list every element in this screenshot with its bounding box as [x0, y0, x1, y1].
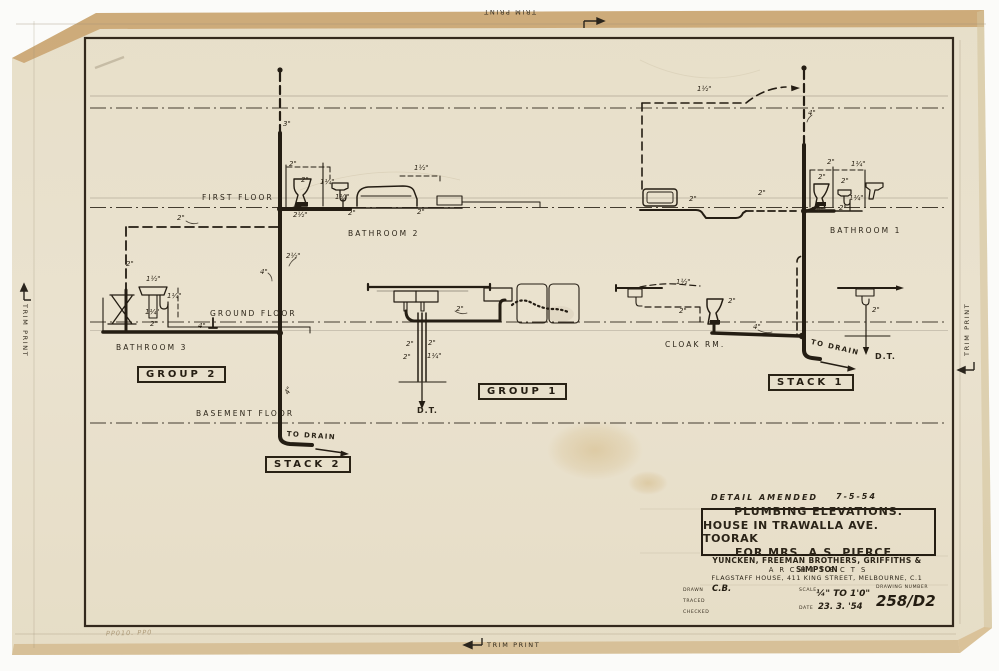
checked-label: CHECKED: [683, 610, 709, 615]
pipe-size-label: 2": [839, 204, 847, 212]
scale-value: ¼" TO 1'0": [816, 589, 870, 599]
drawing-number-label: DRAWING NUMBER: [876, 585, 928, 590]
pipe-size-label: 3": [283, 120, 291, 128]
pipe-size-label: 2": [758, 189, 766, 197]
architects-label: ARCHITECTS: [700, 566, 934, 574]
pipe-size-label: 2": [417, 208, 425, 216]
drawing-title-line1: PLUMBING ELEVATIONS.: [734, 505, 903, 518]
traced-label: TRACED: [683, 599, 705, 604]
pipe-size-label: 1½": [146, 275, 160, 283]
pipe-size-label: 2": [728, 297, 736, 305]
scanned-plumbing-drawing-sheet: TRIM PRINT TRIM PRINT TRIM PRINT TRIM PR…: [0, 0, 999, 671]
pipe-size-label: 1¼": [427, 352, 441, 360]
bathroom3-label: BATHROOM 3: [116, 343, 188, 352]
pipe-size-label: 2": [679, 307, 687, 315]
trim-print-right: TRIM PRINT: [963, 303, 971, 356]
architect-address: FLAGSTAFF HOUSE, 411 KING STREET, MELBOU…: [698, 575, 936, 582]
pipe-size-label: 1¼": [849, 194, 863, 202]
stack1-title-box: STACK 1: [768, 374, 854, 391]
pipe-size-label: 1¼": [145, 308, 159, 316]
pipe-size-label: 1½": [697, 85, 711, 93]
pipe-size-label: 1¼": [167, 292, 181, 300]
drawn-value: C.B.: [712, 584, 731, 594]
group2-title-box: GROUP 2: [137, 366, 226, 383]
pipe-size-label: 2": [348, 209, 356, 217]
pipe-size-label: 4": [753, 323, 761, 331]
bathroom2-label: BATHROOM 2: [348, 229, 420, 238]
scale-label: SCALE: [799, 588, 817, 593]
pipe-size-label: 2": [689, 195, 697, 203]
pipe-size-label: 2": [456, 305, 464, 313]
stack2-title-box: STACK 2: [265, 456, 351, 473]
pipe-size-label: 2": [150, 320, 158, 328]
pipe-size-label: 1¼": [335, 193, 349, 201]
title-block: PLUMBING ELEVATIONS. HOUSE IN TRAWALLA A…: [701, 508, 936, 556]
pipe-size-label: 2": [126, 260, 134, 268]
drawing-title-line2: HOUSE IN TRAWALLA AVE. TOORAK: [703, 519, 934, 545]
pipe-size-label: 4": [808, 109, 816, 117]
pipe-size-label: 2": [827, 158, 835, 166]
pipe-size-label: 4": [198, 322, 206, 330]
amendment-date: 7-5-54: [836, 492, 877, 501]
pipe-size-label: 2": [289, 160, 297, 168]
bathroom1-label: BATHROOM 1: [830, 226, 902, 235]
ground-floor-label: GROUND FLOOR: [210, 309, 297, 318]
pipe-size-label: 2": [301, 176, 309, 184]
pipe-size-label: 1½": [414, 164, 428, 172]
trim-print-top: TRIM PRINT: [476, 8, 536, 16]
trim-print-bottom: TRIM PRINT: [487, 641, 540, 649]
pipe-size-label: 4": [260, 268, 268, 276]
cloak-room-label: CLOAK RM.: [665, 340, 725, 349]
pipe-size-label: 2": [428, 339, 436, 347]
amendment-note: DETAIL AMENDED: [711, 493, 818, 502]
pipe-size-label: 2": [872, 306, 880, 314]
drawing-number-value: 258/D2: [876, 592, 936, 610]
dt-label-right: D.T.: [875, 352, 896, 361]
pipe-size-label: 2": [818, 173, 826, 181]
pipe-size-label: 2": [841, 177, 849, 185]
pipe-size-label: 2": [406, 340, 414, 348]
pipe-size-label: 1¼": [320, 178, 334, 186]
first-floor-label: FIRST FLOOR: [202, 193, 274, 202]
date-label: DATE: [799, 606, 813, 611]
pipe-size-label: 2½": [293, 211, 307, 219]
pipe-size-label: 1¼": [851, 160, 865, 168]
pipe-size-label: 1½": [676, 278, 690, 286]
group1-title-box: GROUP 1: [478, 383, 567, 400]
dt-label-group1: D.T.: [417, 406, 438, 415]
pipe-size-label: 2": [403, 353, 411, 361]
pipe-size-label: 2": [177, 214, 185, 222]
basement-floor-label: BASEMENT FLOOR: [196, 409, 294, 418]
drawn-label: DRAWN: [683, 588, 703, 593]
pencil-accession-note: PP010. PP0: [106, 628, 153, 637]
trim-print-left: TRIM PRINT: [21, 304, 29, 357]
pipe-size-label: 2½": [286, 252, 300, 260]
pipe-size-label: 4": [816, 206, 824, 214]
date-value: 23. 3. '54: [818, 602, 863, 612]
